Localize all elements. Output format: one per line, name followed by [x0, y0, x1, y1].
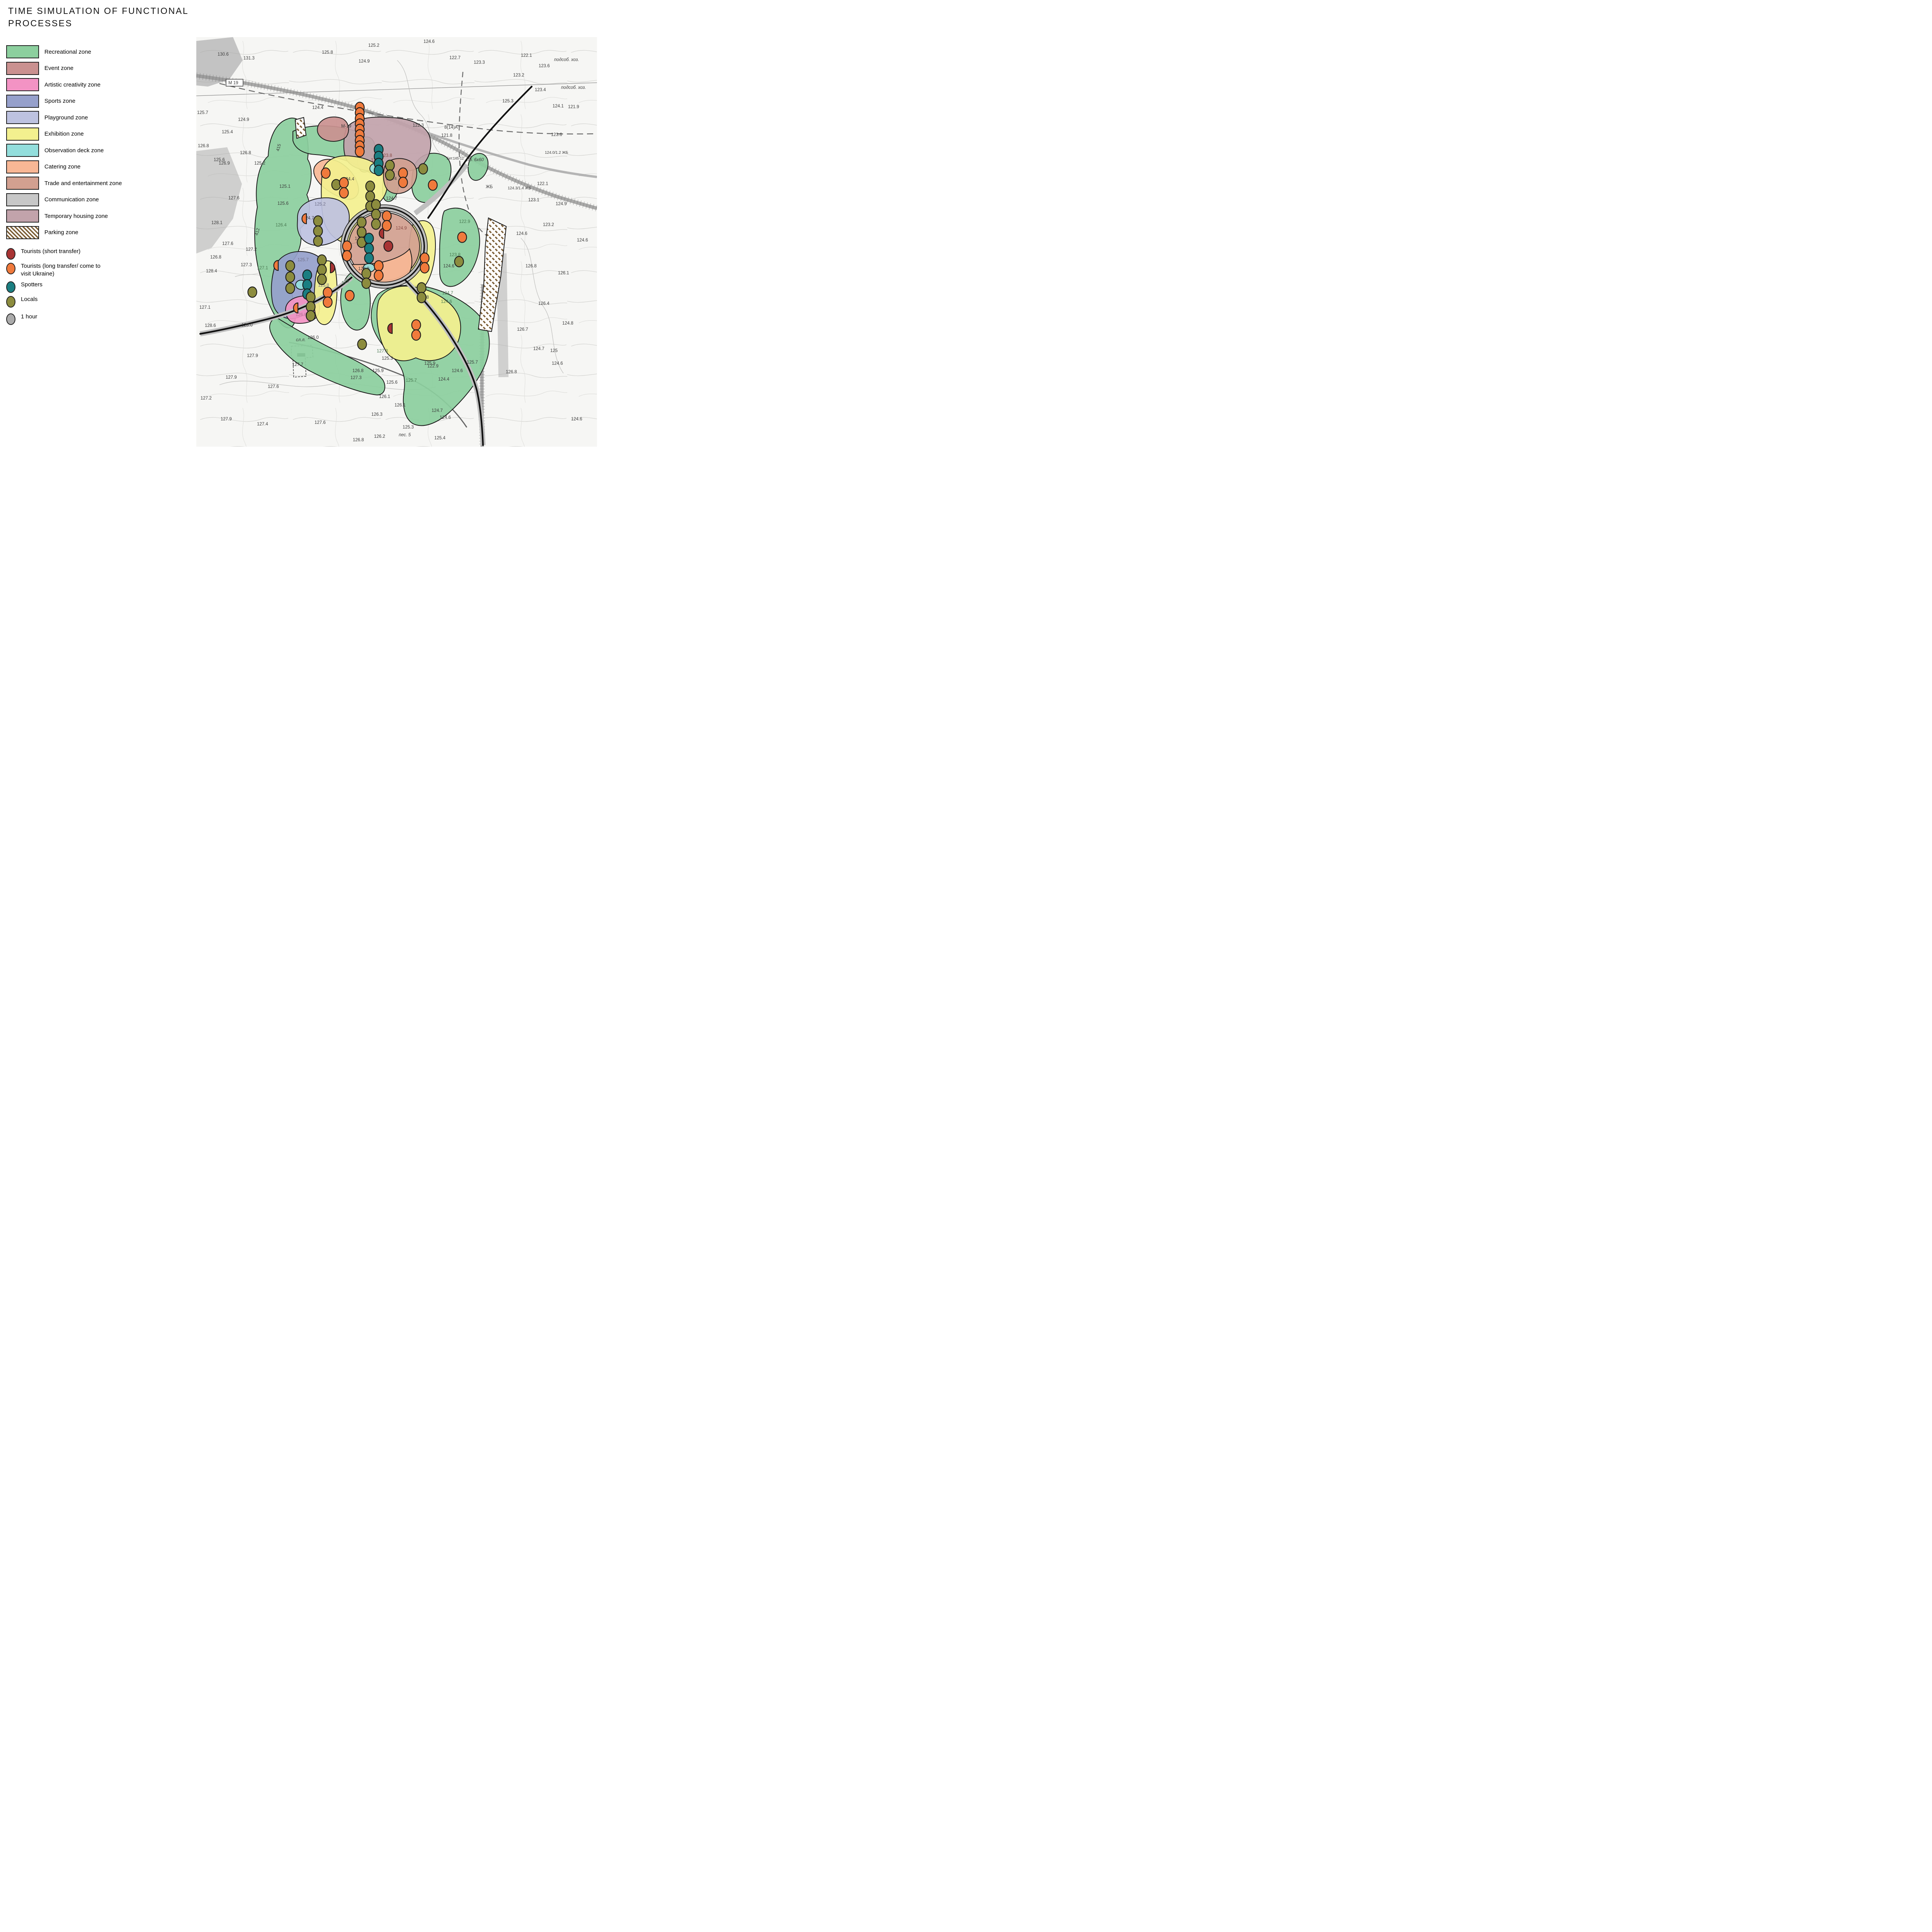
- map-label: 124.6: [516, 231, 527, 236]
- map-label: 123.6: [539, 64, 550, 68]
- teal-person-marker: [303, 270, 312, 281]
- orange-person-marker: [345, 291, 354, 301]
- legend-marker-label: Tourists (short transfer): [21, 248, 80, 256]
- map-label: 125.4: [434, 436, 446, 440]
- orange-person-marker: [412, 330, 421, 340]
- legend-marker-row-gray: 1 hour: [6, 313, 122, 325]
- map-label: 126.8: [210, 255, 221, 260]
- map-label: 128.1: [211, 221, 223, 225]
- map-label: 124.6: [552, 361, 563, 366]
- map-label: 121.8: [441, 133, 452, 138]
- legend-zone-row-temporary: Temporary housing zone: [6, 209, 122, 223]
- title-line2: PROCESSES: [8, 17, 189, 29]
- orange-person-marker: [374, 261, 383, 271]
- map-label: 124.3/1.4 ЖБ: [508, 186, 531, 190]
- legend-zone-row-exhibition: Exhibition zone: [6, 128, 122, 141]
- map-panel: 130.6131.3125.8125.2124.6124.9122.7123.3…: [196, 37, 597, 447]
- legend-zone-row-observation: Observation deck zone: [6, 144, 122, 157]
- olive-person-marker: [417, 283, 426, 293]
- map-label: 127.3: [377, 349, 388, 354]
- map-label: 125.6: [214, 158, 225, 162]
- legend-zone-label: Playground zone: [44, 114, 88, 121]
- orange-person-marker: [420, 253, 429, 264]
- map-label: 127.2: [201, 396, 212, 401]
- map-label: 126.8: [506, 370, 517, 374]
- legend-zone-label: Event zone: [44, 65, 73, 71]
- teal-person-marker: [365, 253, 374, 264]
- map-label: 125.2: [254, 161, 265, 166]
- map-label: 128.4: [206, 269, 217, 274]
- map-label: 121.9: [568, 105, 579, 109]
- legend-marker-row-teal: Spotters: [6, 281, 122, 293]
- legend-zone-label: Sports zone: [44, 98, 75, 104]
- page: TIME SIMULATION OF FUNCTIONAL PROCESSES …: [0, 0, 597, 461]
- teal-person-marker: [365, 233, 374, 244]
- map-label: 125: [550, 349, 558, 353]
- communication-swatch: [6, 193, 39, 206]
- map-label: 122.1: [521, 53, 532, 58]
- map-label: 125.6: [277, 201, 289, 206]
- recreational-swatch: [6, 45, 39, 58]
- map-label: 124.7: [432, 408, 443, 413]
- legend-markers: Tourists (short transfer)Tourists (long …: [6, 248, 122, 325]
- map-label: 127.1: [257, 266, 268, 270]
- orange-marker-swatch: [6, 263, 15, 274]
- map-label: 124.4: [438, 377, 449, 382]
- map-label: 124.8: [562, 321, 573, 326]
- map-label: 126.8: [240, 151, 251, 155]
- map-label: 126.4: [538, 301, 549, 306]
- olive-marker-swatch: [6, 296, 15, 308]
- map-label: 126.1: [558, 271, 569, 276]
- teal-marker-swatch: [6, 281, 15, 293]
- legend-zone-label: Observation deck zone: [44, 147, 104, 154]
- orange-person-marker: [458, 232, 467, 243]
- olive-person-marker: [358, 339, 367, 350]
- event-zone: [317, 117, 349, 141]
- map-label: 127.6: [228, 196, 240, 201]
- olive-person-marker: [286, 272, 295, 282]
- map-label: 124.0/1.2 ЖБ: [545, 151, 568, 155]
- map-label: 125.7: [467, 360, 478, 365]
- map-label: 127.6: [268, 384, 279, 389]
- map-label: 8(14)А: [444, 125, 458, 130]
- red-marker-swatch: [6, 248, 15, 260]
- legend-marker-label: 1 hour: [21, 313, 37, 321]
- legend-zone-row-trade: Trade and entertainment zone: [6, 177, 122, 190]
- olive-person-marker: [419, 164, 428, 174]
- olive-person-marker: [306, 311, 315, 321]
- map-label: 124.6: [440, 415, 451, 420]
- map-label: 130.6: [218, 52, 229, 57]
- orange-person-marker: [429, 180, 437, 190]
- map-label: 125.4: [222, 130, 233, 134]
- map-label: 126.2: [374, 434, 385, 439]
- map-label: 126.1: [379, 395, 390, 399]
- map-label: 124.4: [312, 105, 323, 110]
- map-label: 126.8: [526, 264, 537, 269]
- parking-zone: [295, 117, 306, 138]
- legend-zone-row-catering: Catering zone: [6, 160, 122, 173]
- orange-person-marker: [399, 177, 408, 188]
- map-label: 123.1: [528, 198, 539, 202]
- map-label: 125.2: [315, 202, 326, 207]
- map-label: 127.9: [226, 375, 237, 380]
- legend-zones: Recreational zoneEvent zoneArtistic crea…: [6, 45, 122, 239]
- teal-person-marker: [374, 165, 383, 176]
- teal-person-marker: [365, 243, 374, 254]
- map-label: 124.6: [443, 264, 454, 269]
- catering-swatch: [6, 160, 39, 173]
- map-label: 123.6: [551, 133, 562, 137]
- map-label: 127.6: [315, 420, 326, 425]
- legend-zone-label: Communication zone: [44, 196, 99, 203]
- map-label: 125.7: [298, 258, 309, 262]
- map-label: 125.1: [279, 184, 291, 189]
- map-label: 123.3: [474, 60, 485, 65]
- orange-person-marker: [321, 168, 330, 179]
- olive-person-marker: [417, 293, 426, 303]
- map-label: 124.9: [359, 59, 370, 64]
- olive-person-marker: [366, 181, 375, 192]
- legend-zone-label: Recreational zone: [44, 49, 91, 55]
- olive-person-marker: [372, 200, 381, 210]
- map-label: 127.7: [292, 362, 303, 367]
- map-label: 122.3: [413, 123, 424, 128]
- event-swatch: [6, 62, 39, 75]
- sports-swatch: [6, 95, 39, 108]
- legend-marker-label: Spotters: [21, 281, 43, 289]
- temporary-swatch: [6, 209, 39, 223]
- map-label: 126.1: [395, 403, 406, 408]
- orange-person-marker: [412, 320, 421, 330]
- olive-person-marker: [366, 191, 375, 202]
- map-label: 124.6: [423, 39, 435, 44]
- orange-person-marker: [323, 297, 332, 308]
- map-label: 126.8: [198, 144, 209, 148]
- olive-person-marker: [362, 269, 371, 279]
- map-label: 127.6: [222, 241, 233, 246]
- map-label: 127.9: [221, 417, 232, 422]
- observation-swatch: [6, 144, 39, 157]
- exhibition-swatch: [6, 128, 39, 141]
- map-label: 124.7: [386, 196, 397, 201]
- map-label: 126.8: [353, 438, 364, 442]
- gray-strip: [502, 253, 503, 377]
- map-label: 123.2: [543, 223, 554, 227]
- map-label: 127.3: [350, 376, 362, 380]
- legend-zone-row-parking: Parking zone: [6, 226, 122, 239]
- orange-person-marker: [420, 263, 429, 273]
- red-person-marker: [384, 241, 393, 252]
- legend: Recreational zoneEvent zoneArtistic crea…: [6, 45, 122, 328]
- map-label: М 19: [228, 81, 238, 85]
- olive-person-marker: [306, 292, 315, 303]
- legend-zone-label: Artistic creativity zone: [44, 82, 100, 88]
- playground-swatch: [6, 111, 39, 124]
- olive-person-marker: [286, 261, 295, 271]
- map-label: 122.9: [459, 219, 470, 224]
- legend-zone-label: Parking zone: [44, 229, 78, 236]
- map-label: 124.6: [452, 369, 463, 373]
- map-label: пр. 6х60: [467, 158, 484, 162]
- map-label: 124.9: [396, 226, 407, 231]
- olive-person-marker: [318, 255, 327, 265]
- map-label: подсоб. хоз.: [554, 58, 579, 62]
- map-label: 125.2: [368, 43, 379, 48]
- map-label: 127.2: [246, 247, 257, 252]
- legend-zone-row-recreational: Recreational zone: [6, 45, 122, 58]
- map-label: 125.3: [382, 356, 393, 361]
- legend-zone-label: Temporary housing zone: [44, 213, 108, 219]
- olive-person-marker: [386, 170, 395, 180]
- legend-zone-label: Exhibition zone: [44, 131, 84, 137]
- olive-person-marker: [372, 209, 381, 220]
- map-label: 124.7: [533, 347, 544, 351]
- legend-marker-label: Locals: [21, 296, 37, 304]
- orange-person-marker: [343, 241, 352, 252]
- olive-person-marker: [357, 217, 366, 228]
- map-label: 123.2: [513, 73, 524, 78]
- map-label: M-19: [341, 124, 351, 129]
- map-label: 124.9: [238, 117, 249, 122]
- legend-marker-row-orange: Tourists (long transfer/ come to visit U…: [6, 262, 122, 278]
- olive-person-marker: [372, 219, 381, 230]
- orange-person-marker: [355, 146, 364, 157]
- map-label: 123.4: [535, 88, 546, 92]
- map-label: 122.1: [537, 182, 548, 186]
- legend-zone-row-event: Event zone: [6, 62, 122, 75]
- map-label: подсоб. хоз.: [561, 85, 586, 90]
- map-label: 124.6: [577, 238, 588, 243]
- map-label: 125.6: [386, 380, 398, 385]
- map-label: пес. 5: [399, 433, 411, 437]
- legend-zone-label: Trade and entertainment zone: [44, 180, 122, 187]
- map-label: 125.8: [322, 50, 333, 55]
- map-label: 125.3: [502, 99, 514, 104]
- orange-person-marker: [323, 287, 332, 298]
- map-canvas: 130.6131.3125.8125.2124.6124.9122.7123.3…: [196, 37, 597, 447]
- artistic-swatch: [6, 78, 39, 91]
- olive-person-marker: [248, 287, 257, 298]
- map-label: 126.7: [517, 327, 528, 332]
- map-label: 125.7: [406, 378, 417, 383]
- map-label: 124.7: [442, 291, 453, 296]
- map-label: 122.7: [449, 56, 461, 60]
- map-label: 127.4: [257, 422, 268, 427]
- orange-person-marker: [374, 270, 383, 281]
- map-label: 126.8: [352, 369, 364, 373]
- legend-zone-row-sports: Sports zone: [6, 95, 122, 108]
- legend-marker-row-red: Tourists (short transfer): [6, 248, 122, 260]
- map-label: 124.6: [441, 299, 452, 304]
- map-label: 127.9: [247, 354, 258, 358]
- map-label: 127.3: [241, 263, 252, 267]
- legend-zone-row-artistic: Artistic creativity zone: [6, 78, 122, 91]
- olive-person-marker: [286, 283, 295, 294]
- page-title: TIME SIMULATION OF FUNCTIONAL PROCESSES: [8, 5, 189, 29]
- map-label: 124.1: [553, 104, 564, 109]
- map-label: сл.л.: [296, 338, 306, 342]
- map-label: 126.0: [308, 335, 319, 340]
- map-label: Бет.145-12: [447, 156, 464, 160]
- olive-person-marker: [362, 278, 371, 289]
- trade-swatch: [6, 177, 39, 190]
- legend-marker-label: Tourists (long transfer/ come to visit U…: [21, 262, 100, 278]
- map-label: 125.7: [197, 111, 208, 115]
- olive-person-marker: [314, 236, 323, 247]
- map-label: 128.0: [241, 323, 253, 328]
- olive-person-marker: [314, 216, 323, 226]
- legend-zone-row-playground: Playground zone: [6, 111, 122, 124]
- orange-person-marker: [383, 221, 391, 231]
- map-label: ЖБ: [486, 185, 493, 189]
- olive-person-marker: [314, 226, 323, 236]
- map-label: 126.3: [371, 412, 383, 417]
- olive-person-marker: [318, 265, 327, 275]
- title-line1: TIME SIMULATION OF FUNCTIONAL: [8, 5, 189, 17]
- map-label: 128.6: [205, 323, 216, 328]
- map-label: 131.3: [243, 56, 255, 61]
- map-label: 126.4: [276, 223, 287, 228]
- gray-marker-swatch: [6, 313, 15, 325]
- map-label: 124.9: [556, 202, 567, 206]
- orange-person-marker: [340, 178, 349, 188]
- map-label: 125.9: [372, 369, 384, 373]
- orange-person-marker: [340, 188, 349, 198]
- parking-swatch: [6, 226, 39, 239]
- legend-marker-row-olive: Locals: [6, 296, 122, 308]
- legend-zone-row-communication: Communication zone: [6, 193, 122, 206]
- map-label: 125.3: [403, 425, 414, 430]
- map-label: 127.1: [199, 305, 211, 310]
- olive-person-marker: [386, 160, 395, 171]
- orange-person-marker: [383, 211, 391, 221]
- map-label: 125.9: [424, 361, 435, 366]
- legend-zone-label: Catering zone: [44, 163, 80, 170]
- orange-person-marker: [343, 251, 352, 261]
- olive-person-marker: [318, 274, 327, 285]
- map-label: 124.6: [571, 417, 582, 422]
- olive-person-marker: [455, 257, 464, 267]
